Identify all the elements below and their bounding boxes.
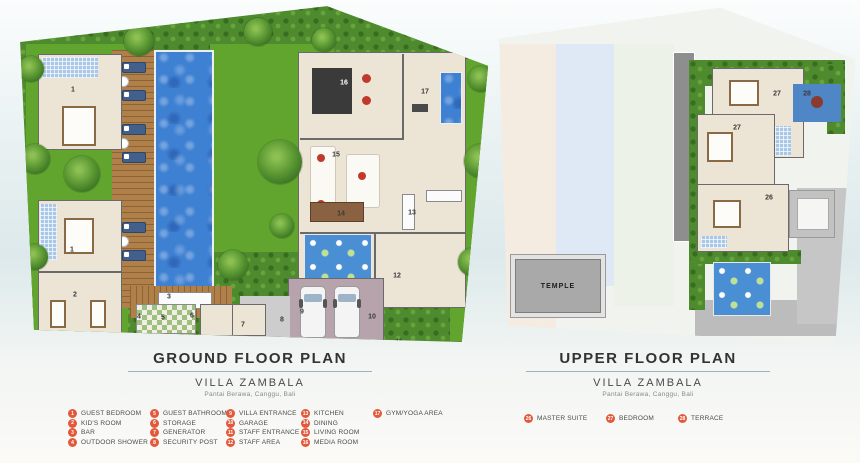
legend-label: KID'S ROOM <box>81 420 121 427</box>
upper-floor-caption: UPPER FLOOR PLAN VILLA ZAMBALA Pantai Be… <box>498 350 798 398</box>
room-number-marker: 28 <box>803 91 811 98</box>
legend-label: MEDIA ROOM <box>314 439 358 446</box>
legend-item: 13KITCHEN <box>301 409 344 418</box>
ground-floor-plan: 11234567891011121314151617 <box>12 4 490 350</box>
villa-name: VILLA ZAMBALA <box>100 377 400 389</box>
legend-number-badge: 6 <box>150 419 159 428</box>
legend-item: 28TERRACE <box>678 414 723 423</box>
legend-item: 3BAR <box>68 428 95 437</box>
legend-item: 7GENERATOR <box>150 428 205 437</box>
legend-number-badge: 13 <box>301 409 310 418</box>
legend-item: 16MEDIA ROOM <box>301 438 358 447</box>
legend-number-badge: 15 <box>301 428 310 437</box>
legend-label: KITCHEN <box>314 410 344 417</box>
room-number-marker: 11 <box>395 339 402 346</box>
room-number-marker: 9 <box>300 309 304 316</box>
legend-item: 2KID'S ROOM <box>68 419 121 428</box>
legend-number-badge: 16 <box>301 438 310 447</box>
legend-label: STAFF ENTRANCE <box>239 429 299 436</box>
room-number-marker: 26 <box>765 195 773 202</box>
room-number-marker: 2 <box>73 292 77 299</box>
legend-number-badge: 2 <box>68 419 77 428</box>
legend-label: STORAGE <box>163 420 196 427</box>
legend-label: VILLA ENTRANCE <box>239 410 297 417</box>
room-number-marker: 7 <box>241 322 245 329</box>
room-number-marker: 6 <box>190 313 194 320</box>
room-number-marker: 13 <box>408 210 416 217</box>
legend-item: 14DINING <box>301 419 338 428</box>
room-number-marker: 14 <box>337 211 345 218</box>
room-number-marker: 16 <box>340 80 348 87</box>
legend-label: GUEST BEDROOM <box>81 410 141 417</box>
legend-label: LIVING ROOM <box>314 429 360 436</box>
room-number-marker: 10 <box>368 314 376 321</box>
room-number-marker: 4 <box>137 314 141 321</box>
legend-label: SECURITY POST <box>163 439 218 446</box>
room-number-marker: 8 <box>280 317 284 324</box>
legend-item: 9VILLA ENTRANCE <box>226 409 297 418</box>
room-number-marker: 5 <box>161 315 165 322</box>
ground-floor-caption: GROUND FLOOR PLAN VILLA ZAMBALA Pantai B… <box>100 350 400 398</box>
legend-label: GYM/YOGA AREA <box>386 410 443 417</box>
legend-item: 8SECURITY POST <box>150 438 218 447</box>
legend-number-badge: 26 <box>524 414 533 423</box>
legend-item: 11STAFF ENTRANCE <box>226 428 299 437</box>
room-number-marker: 1 <box>70 247 74 254</box>
legend-label: DINING <box>314 420 338 427</box>
legend-number-badge: 3 <box>68 428 77 437</box>
legend-number-badge: 8 <box>150 438 159 447</box>
ground-floor-title: GROUND FLOOR PLAN <box>100 350 400 367</box>
legend-item: 10GARAGE <box>226 419 268 428</box>
legend-number-badge: 9 <box>226 409 235 418</box>
legend-number-badge: 28 <box>678 414 687 423</box>
legend-item: 27BEDROOM <box>606 414 654 423</box>
legend-item: 12STAFF AREA <box>226 438 280 447</box>
upper-floor-title: UPPER FLOOR PLAN <box>498 350 798 367</box>
legend-label: OUTDOOR SHOWER <box>81 439 148 446</box>
legend-label: GARAGE <box>239 420 268 427</box>
ground-floor-markers: 11234567891011121314151617 <box>12 4 490 350</box>
legend-item: 5GUEST BATHROOM <box>150 409 227 418</box>
legend-item: 26MASTER SUITE <box>524 414 587 423</box>
legend-label: MASTER SUITE <box>537 415 587 422</box>
room-number-marker: 17 <box>421 89 429 96</box>
villa-name: VILLA ZAMBALA <box>498 377 798 389</box>
legend-number-badge: 17 <box>373 409 382 418</box>
legend-number-badge: 10 <box>226 419 235 428</box>
legend-item: 6STORAGE <box>150 419 196 428</box>
legend-item: 17GYM/YOGA AREA <box>373 409 443 418</box>
legend-number-badge: 4 <box>68 438 77 447</box>
legend-number-badge: 5 <box>150 409 159 418</box>
legend-number-badge: 14 <box>301 419 310 428</box>
legend-item: 4OUTDOOR SHOWER <box>68 438 148 447</box>
villa-location: Pantai Berawa, Canggu, Bali <box>498 391 798 398</box>
room-number-marker: 15 <box>332 152 340 159</box>
room-number-marker: 3 <box>167 294 171 301</box>
upper-floor-plan: TEMPLE 27282726 <box>497 4 857 350</box>
divider <box>526 371 770 372</box>
legend-number-badge: 1 <box>68 409 77 418</box>
legend-number-badge: 12 <box>226 438 235 447</box>
legend-number-badge: 7 <box>150 428 159 437</box>
legend-number-badge: 11 <box>226 428 235 437</box>
legend-label: GUEST BATHROOM <box>163 410 227 417</box>
legend-label: GENERATOR <box>163 429 205 436</box>
room-number-marker: 12 <box>393 273 401 280</box>
legend-item: 15LIVING ROOM <box>301 428 360 437</box>
legend-number-badge: 27 <box>606 414 615 423</box>
divider <box>128 371 372 372</box>
legend-label: STAFF AREA <box>239 439 280 446</box>
villa-location: Pantai Berawa, Canggu, Bali <box>100 391 400 398</box>
room-number-marker: 27 <box>733 125 741 132</box>
room-number-marker: 27 <box>773 91 781 98</box>
legend-label: BEDROOM <box>619 415 654 422</box>
legend-label: TERRACE <box>691 415 723 422</box>
legend-item: 1GUEST BEDROOM <box>68 409 141 418</box>
legend-label: BAR <box>81 429 95 436</box>
room-number-marker: 1 <box>71 87 75 94</box>
upper-floor-markers: 27282726 <box>497 4 857 350</box>
